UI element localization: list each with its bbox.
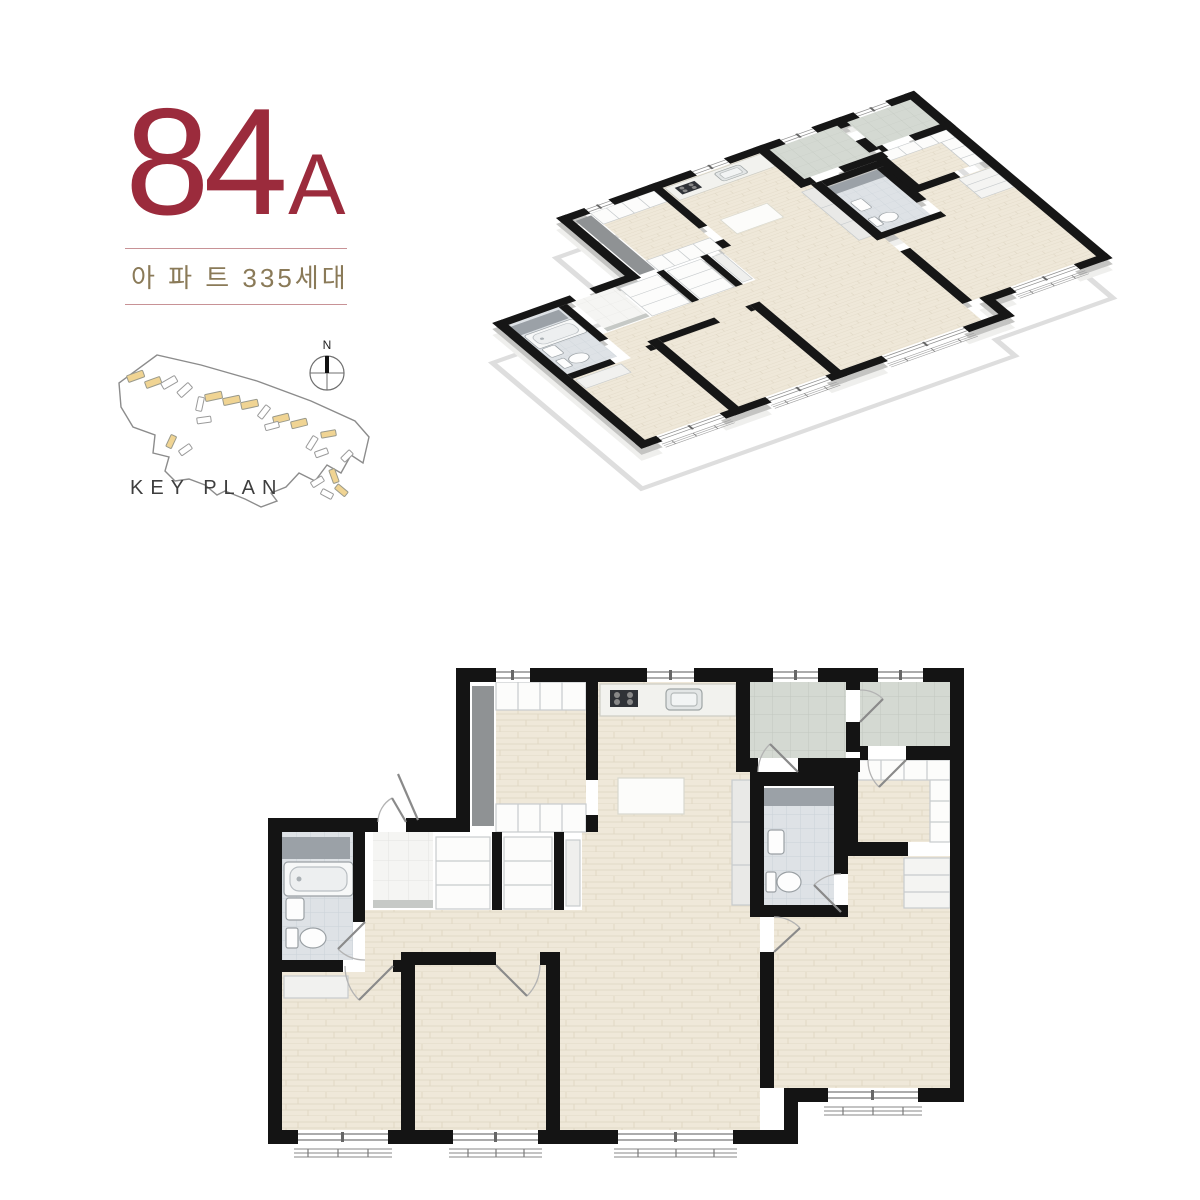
floor-plan-2d: [268, 668, 964, 1157]
brochure-page: 84 A 아 파 트 335세대: [0, 0, 1200, 1200]
floor-plans-stage: [0, 0, 1200, 1200]
floor-plan-3d: [391, 91, 1166, 489]
